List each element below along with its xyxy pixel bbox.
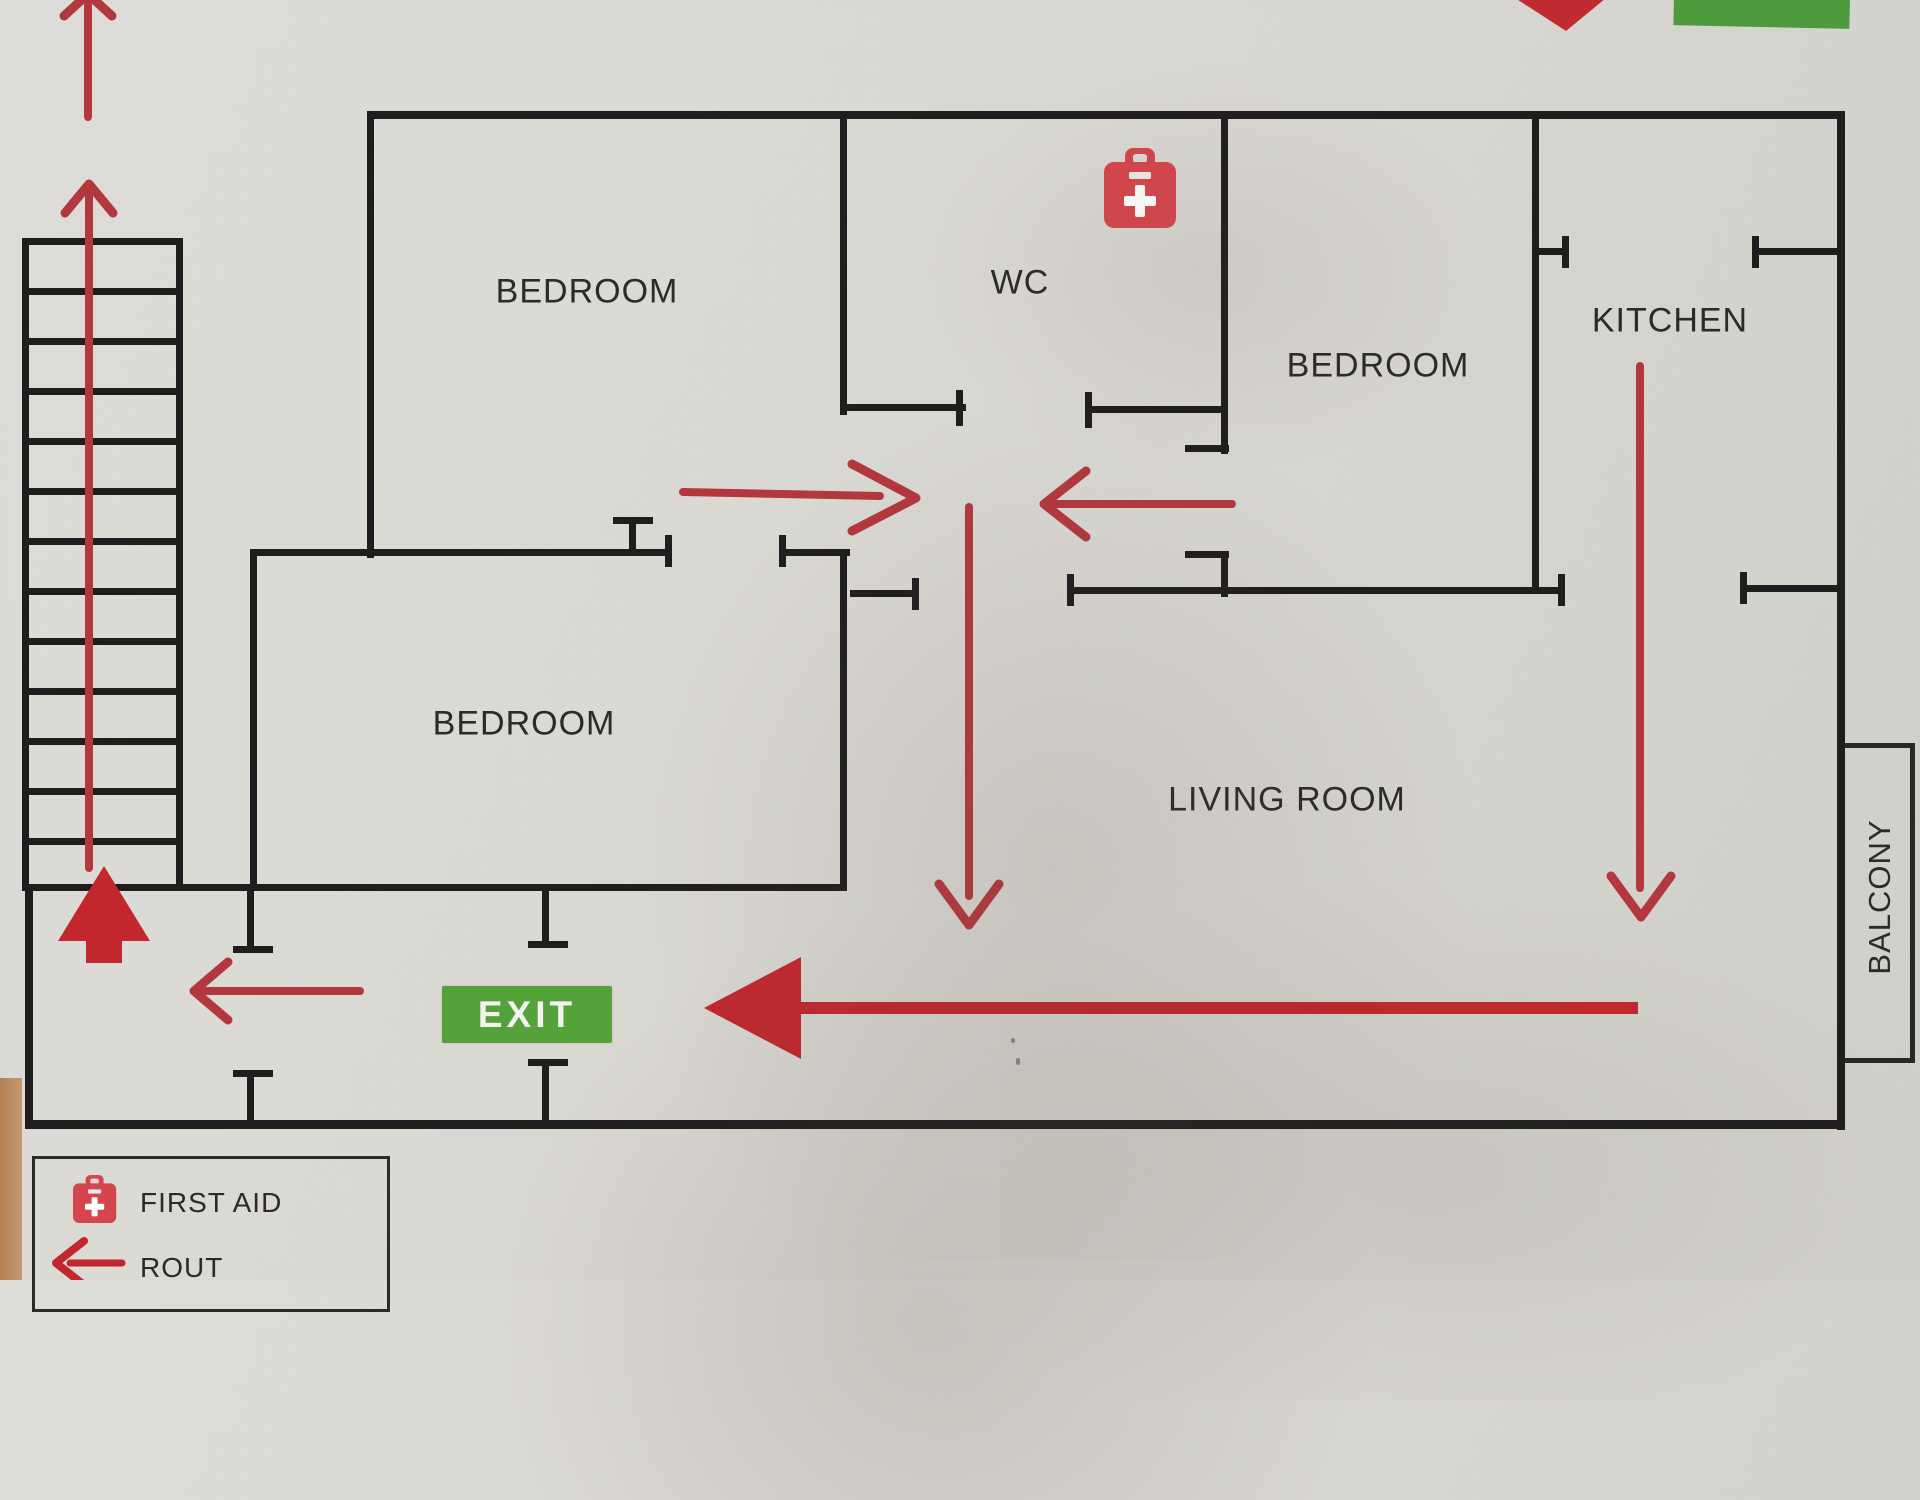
route-arrow-up-top-cropped-head (64, 0, 112, 16)
wall-segment (1532, 111, 1539, 594)
wall-segment (250, 549, 668, 556)
route-arrow-left-exit-head (194, 962, 228, 1020)
door-jamb (528, 1059, 568, 1066)
stairs-right-wall (176, 238, 183, 891)
route-arrow-right-hall (683, 492, 880, 496)
door-jamb (247, 1077, 254, 1122)
route-arrow-down-kitchen-head (1611, 876, 1671, 917)
legend-label-first-aid: FIRST AID (140, 1187, 282, 1219)
wall-segment (367, 111, 1845, 119)
route-arrow-down-corridor-head (939, 884, 999, 925)
stairs-steps (29, 238, 176, 886)
photo-speck (1016, 1058, 1020, 1065)
evacuation-plan-photo: { "plan": { "labels": { "bedroom_top_lef… (0, 0, 1920, 1280)
door-jamb (613, 517, 653, 524)
route-arrow-stairs-up-head (65, 184, 113, 213)
door-jamb (233, 946, 273, 953)
big-left-arrow-head (704, 957, 801, 1059)
first-aid-latch (88, 1189, 101, 1193)
door-jamb (629, 524, 636, 551)
door-jamb (779, 535, 786, 567)
door-jamb (247, 891, 254, 948)
door-jamb (528, 941, 568, 948)
legend (32, 1156, 390, 1312)
route-arrow-right-hall-head (852, 464, 916, 531)
wall-segment (1755, 248, 1844, 255)
wall-segment (1221, 111, 1228, 454)
door-jamb (1185, 445, 1229, 452)
legend-label-route: ROUT (140, 1252, 223, 1284)
room-label-bedroom-bottom-left: BEDROOM (433, 705, 616, 744)
wall-segment (25, 1120, 1845, 1129)
door-jamb (233, 1070, 273, 1077)
big-left-arrow-stem (798, 1002, 1638, 1014)
wall-segment (25, 884, 847, 891)
room-label-bedroom-top-left: BEDROOM (496, 273, 679, 312)
door-jamb (1085, 392, 1092, 428)
wall-segment (840, 111, 847, 415)
door-jamb (1562, 236, 1569, 268)
wall-segment (1070, 587, 1561, 594)
wall-segment (250, 549, 257, 891)
wall-segment (840, 549, 847, 891)
door-jamb (1185, 551, 1229, 558)
table-wood-edge (0, 1078, 22, 1280)
door-jamb (912, 578, 919, 610)
first-aid-latch (1129, 172, 1151, 179)
door-jamb (1558, 574, 1565, 606)
exit-sign-label: EXIT (478, 994, 576, 1036)
wall-segment (850, 590, 916, 597)
cropped-arrow-top-right (1512, 0, 1606, 31)
room-label-wc: WC (991, 264, 1050, 303)
exit-sign-top-cropped (1673, 0, 1850, 29)
room-label-bedroom-right: BEDROOM (1287, 347, 1470, 386)
stairs-left-wall (22, 238, 29, 891)
route-arrows-layer (0, 0, 1920, 1280)
room-label-living-room: LIVING ROOM (1168, 781, 1406, 820)
photo-shadow (480, 900, 1380, 1500)
door-jamb (1067, 574, 1074, 606)
door-jamb (1752, 236, 1759, 268)
wall-segment (367, 111, 374, 558)
legend-first-aid-kit-icon (73, 1175, 116, 1224)
first-aid-cross (1124, 196, 1156, 206)
wall-segment (1089, 406, 1228, 413)
door-jamb (1740, 572, 1747, 604)
door-jamb (542, 1066, 549, 1122)
wall-segment (1837, 111, 1845, 1130)
photo-speck (1011, 1038, 1015, 1043)
first-aid-kit-icon (1104, 148, 1176, 230)
balcony-rail (1910, 743, 1915, 1063)
exit-sign: EXIT (442, 986, 612, 1043)
balcony-rail (1845, 1058, 1915, 1063)
balcony-rail (1845, 743, 1915, 748)
photo-shadow (1000, 880, 1900, 1400)
door-jamb (956, 390, 963, 426)
room-label-balcony: BALCONY (1862, 819, 1898, 974)
wall-segment (1743, 585, 1844, 592)
wall-segment (25, 884, 33, 1129)
first-aid-cross (85, 1204, 104, 1210)
route-arrow-left-hall-head (1044, 471, 1086, 537)
wall-segment (840, 404, 966, 411)
door-jamb (665, 535, 672, 567)
door-jamb (542, 891, 549, 943)
room-label-kitchen: KITCHEN (1592, 302, 1748, 341)
